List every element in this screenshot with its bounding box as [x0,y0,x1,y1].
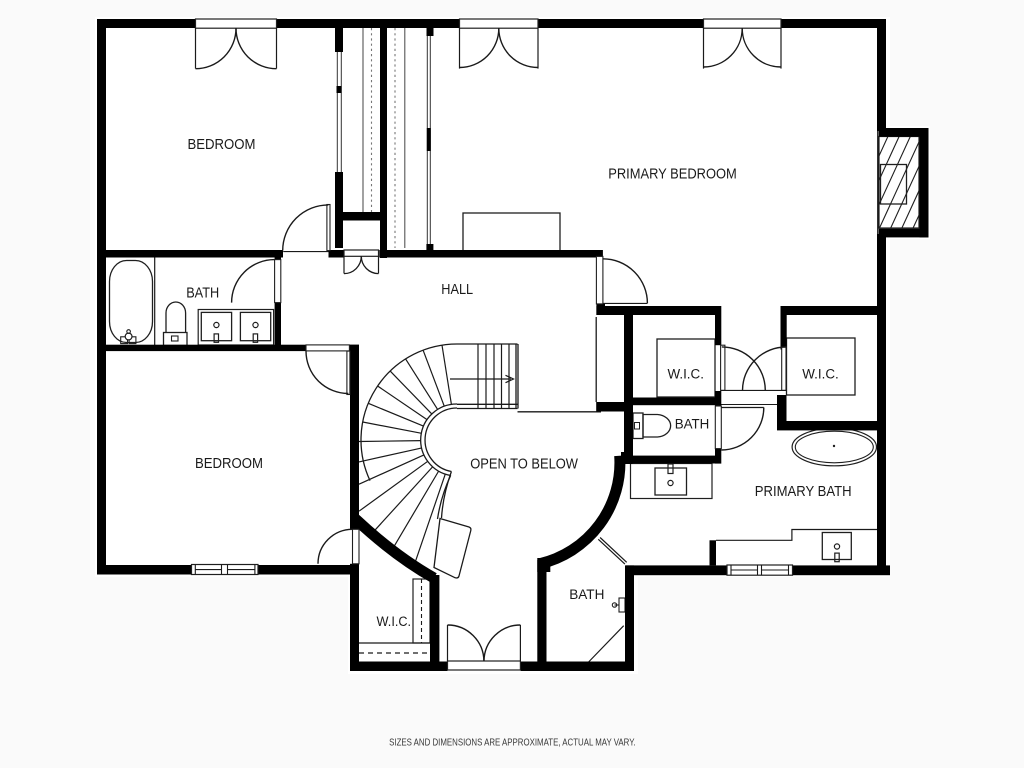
svg-text:W.I.C.: W.I.C. [377,614,412,630]
svg-text:BATH: BATH [186,285,219,301]
svg-text:PRIMARY BEDROOM: PRIMARY BEDROOM [608,165,737,182]
svg-text:W.I.C.: W.I.C. [667,366,704,382]
svg-text:PRIMARY BATH: PRIMARY BATH [755,483,852,500]
svg-text:BATH: BATH [675,417,710,433]
svg-text:BATH: BATH [569,587,604,603]
svg-text:W.I.C.: W.I.C. [802,366,839,382]
svg-text:HALL: HALL [441,282,473,298]
svg-text:SIZES AND DIMENSIONS ARE APPRO: SIZES AND DIMENSIONS ARE APPROXIMATE, AC… [389,737,636,748]
svg-text:BEDROOM: BEDROOM [188,136,256,153]
svg-text:OPEN TO BELOW: OPEN TO BELOW [470,455,579,472]
svg-text:BEDROOM: BEDROOM [195,455,263,472]
